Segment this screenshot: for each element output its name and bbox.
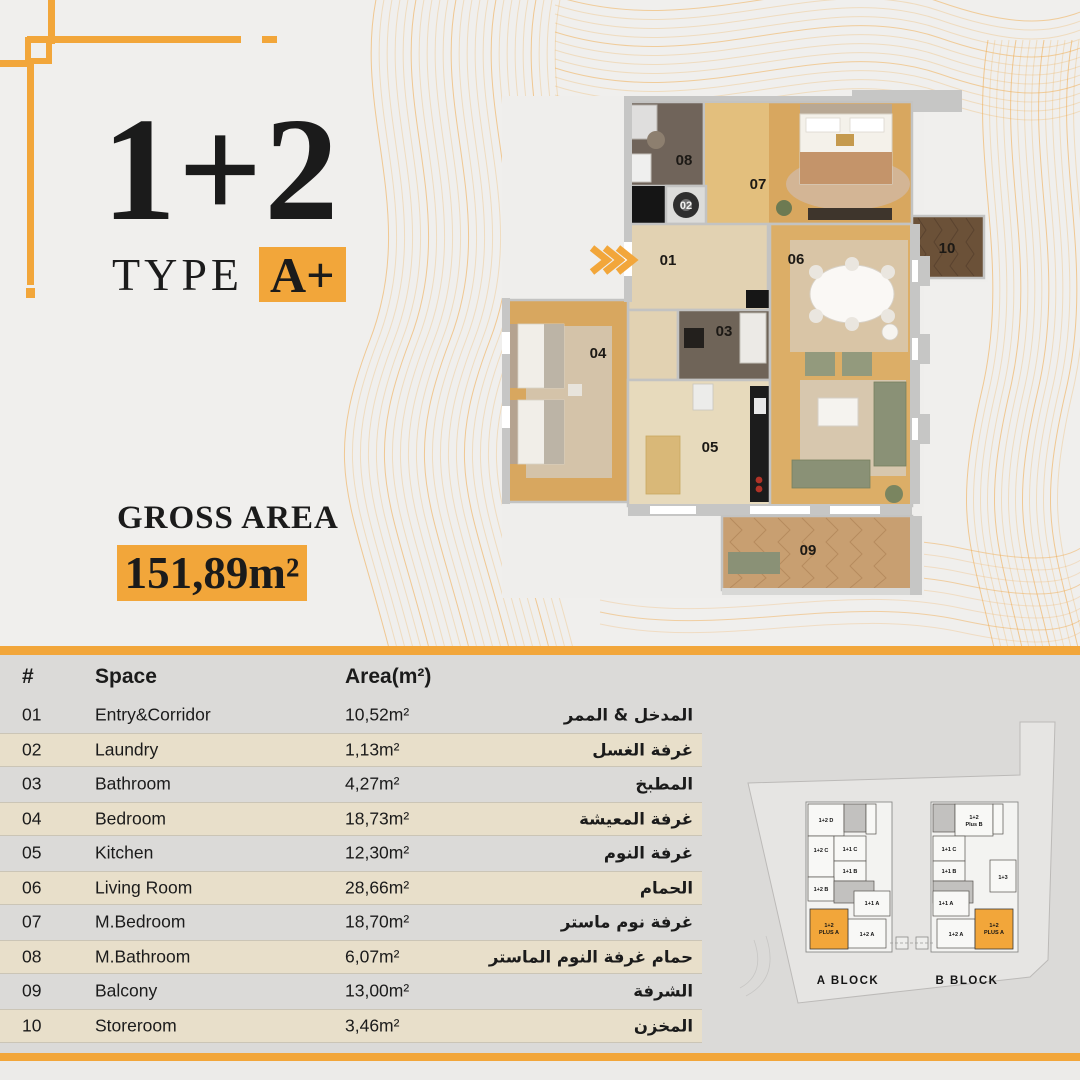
window-sill xyxy=(920,414,930,444)
table-cell-area: 13,00m² xyxy=(345,981,520,1002)
table-cell-num: 09 xyxy=(22,981,77,1002)
table-cell-ar: غرفة الغسل xyxy=(592,740,693,759)
table-cell-space: Storeroom xyxy=(95,1015,340,1036)
left-wall-upper xyxy=(624,100,632,242)
table-cell-area: 4,27m² xyxy=(345,774,520,795)
table-row: 01Entry&Corridor10,52m²المدخل & الممر xyxy=(0,698,702,733)
divider-bar-top xyxy=(0,646,1080,655)
table-cell-num: 05 xyxy=(22,843,77,864)
poster-canvas: 1+2 TYPE A+ GROSS AREA 151,89m² xyxy=(0,0,1080,1080)
table-cell-num: 01 xyxy=(22,705,77,726)
room-label-03: 03 xyxy=(716,323,733,340)
room-master-bathroom xyxy=(628,102,704,186)
table-cell-ar: المطبخ xyxy=(635,775,693,794)
window-gap xyxy=(750,506,810,514)
table-cell-area: 18,73m² xyxy=(345,808,520,829)
window-sill xyxy=(920,334,930,364)
room-label-06: 06 xyxy=(788,251,805,268)
header-number: # xyxy=(22,665,34,689)
shaft xyxy=(628,186,666,224)
window-gap xyxy=(650,506,696,514)
frame-dash xyxy=(262,36,277,43)
table-cell-area: 10,52m² xyxy=(345,705,520,726)
type-value-badge: A+ xyxy=(259,247,346,302)
table-header: # Space Area(m²) xyxy=(0,655,702,698)
table-row: 06Living Room28,66m²الحمام xyxy=(0,871,702,906)
table-cell-space: Bathroom xyxy=(95,774,340,795)
table-row: 04Bedroom18,73m²غرفة المعيشة xyxy=(0,802,702,837)
apartment-floorplan: 01 02 03 04 05 06 07 08 09 10 xyxy=(500,88,996,623)
table-cell-area: 28,66m² xyxy=(345,877,520,898)
room-kitchen xyxy=(628,380,770,506)
window-sill xyxy=(920,256,930,286)
unit-label: 1+1 A xyxy=(865,901,880,907)
unit-label: 1+2 D xyxy=(819,818,834,824)
unit-label-highlight: 1+2 xyxy=(989,923,998,929)
table-cell-ar: غرفة النوم xyxy=(604,844,693,863)
table-cell-ar: المخزن xyxy=(634,1016,693,1035)
table-rows: 01Entry&Corridor10,52m²المدخل & الممر02L… xyxy=(0,698,702,1043)
unit-label: 1+2 A xyxy=(949,932,964,938)
block-b: 1+2 Plus B 1+1 C 1+1 B 1+3 1+1 A 1+2 A 1… xyxy=(931,802,1018,952)
table-cell-ar: غرفة المعيشة xyxy=(579,809,693,828)
table-cell-space: Entry&Corridor xyxy=(95,705,340,726)
room-master-bedroom xyxy=(704,102,912,224)
unit-label-highlight: 1+2 xyxy=(824,923,833,929)
room-label-01: 01 xyxy=(660,252,677,269)
unit-label: 1+1 C xyxy=(843,847,858,853)
table-cell-space: M.Bathroom xyxy=(95,946,340,967)
table-cell-space: Bedroom xyxy=(95,808,340,829)
table-cell-num: 10 xyxy=(22,1015,77,1036)
table-row: 02Laundry1,13m²غرفة الغسل xyxy=(0,733,702,768)
table-cell-area: 18,70m² xyxy=(345,912,520,933)
table-cell-num: 04 xyxy=(22,808,77,829)
gross-area-label: GROSS AREA xyxy=(117,500,339,537)
site-plan: 1+2 D 1+2 C 1+1 C 1+1 B 1+2 B 1+1 A 1+2 … xyxy=(730,690,1080,1020)
window-gap xyxy=(502,332,510,354)
room-bedroom xyxy=(508,300,628,502)
table-cell-ar: غرفة نوم ماستر xyxy=(561,913,693,932)
window-gap xyxy=(912,260,918,282)
header-space: Space xyxy=(95,665,157,689)
type-row: TYPE A+ xyxy=(112,246,346,303)
table-row: 08M.Bathroom6,07m²حمام غرفة النوم الماست… xyxy=(0,940,702,975)
table-cell-area: 1,13m² xyxy=(345,739,520,760)
table-row: 10Storeroom3,46m²المخزن xyxy=(0,1009,702,1044)
table-cell-ar: الحمام xyxy=(640,878,693,897)
window-gap xyxy=(830,506,880,514)
unit-label: 1+1 A xyxy=(939,901,954,907)
block-b-label: B BLOCK xyxy=(936,975,999,987)
table-cell-space: Balcony xyxy=(95,981,340,1002)
frame-line-horizontal xyxy=(27,36,241,43)
window-gap xyxy=(502,406,510,428)
table-cell-num: 06 xyxy=(22,877,77,898)
room-label-08: 08 xyxy=(676,152,693,169)
table-cell-num: 03 xyxy=(22,774,77,795)
room-label-05: 05 xyxy=(702,439,719,456)
table-cell-space: Laundry xyxy=(95,739,340,760)
unit-count-title: 1+2 xyxy=(102,96,340,244)
frame-end-dash xyxy=(26,288,35,298)
block-a: 1+2 D 1+2 C 1+1 C 1+1 B 1+2 B 1+1 A 1+2 … xyxy=(806,802,892,952)
type-label: TYPE xyxy=(112,248,243,301)
bedroom-left-wall xyxy=(502,298,510,504)
header-area: Area(m²) xyxy=(345,665,431,689)
table-row: 03Bathroom4,27m²المطبخ xyxy=(0,767,702,802)
footer-strip xyxy=(0,1061,1080,1080)
frame-line-vertical xyxy=(27,63,34,285)
unit-label: 1+1 B xyxy=(843,869,858,875)
unit-label: Plus B xyxy=(965,822,982,828)
unit-label: 1+2 A xyxy=(860,932,875,938)
room-label-09: 09 xyxy=(800,542,817,559)
table-cell-num: 02 xyxy=(22,739,77,760)
table-cell-num: 08 xyxy=(22,946,77,967)
block-a-label: A BLOCK xyxy=(817,975,879,987)
plot-contour xyxy=(740,940,758,988)
table-cell-space: Kitchen xyxy=(95,843,340,864)
plot-contour xyxy=(746,936,770,996)
table-cell-space: Living Room xyxy=(95,877,340,898)
window-gap xyxy=(912,338,918,360)
divider-bar-bottom xyxy=(0,1053,1080,1061)
table-cell-space: M.Bedroom xyxy=(95,912,340,933)
gross-area-value-badge: 151,89m² xyxy=(117,545,307,601)
left-wall-lower xyxy=(624,276,632,302)
table-cell-area: 12,30m² xyxy=(345,843,520,864)
unit-label: 1+2 xyxy=(969,815,978,821)
room-label-07: 07 xyxy=(750,176,767,193)
table-cell-ar: المدخل & الممر xyxy=(564,706,693,725)
frame-corner-square xyxy=(25,37,52,64)
table-row: 05Kitchen12,30m²غرفة النوم xyxy=(0,836,702,871)
room-bathroom xyxy=(678,310,770,380)
table-row: 07M.Bedroom18,70m²غرفة نوم ماستر xyxy=(0,905,702,940)
unit-label: 1+3 xyxy=(998,875,1007,881)
table-cell-ar: الشرفة xyxy=(633,982,693,1001)
unit-label-highlight: PLUS A xyxy=(984,930,1004,936)
window-gap xyxy=(912,418,918,440)
table-row: 09Balcony13,00m²الشرفة xyxy=(0,974,702,1009)
unit-label: 1+1 C xyxy=(942,847,957,853)
unit-label-highlight: PLUS A xyxy=(819,930,839,936)
room-label-10: 10 xyxy=(939,240,956,257)
frame-stub-left xyxy=(0,60,27,67)
unit-label: 1+2 C xyxy=(814,848,829,854)
room-balcony xyxy=(722,516,922,595)
table-cell-num: 07 xyxy=(22,912,77,933)
unit-label: 1+1 B xyxy=(942,869,957,875)
table-cell-ar: حمام غرفة النوم الماستر xyxy=(489,947,693,966)
room-label-02: 02 xyxy=(680,200,692,212)
unit-label: 1+2 B xyxy=(814,887,829,893)
room-label-04: 04 xyxy=(590,345,607,362)
table-cell-area: 3,46m² xyxy=(345,1015,520,1036)
